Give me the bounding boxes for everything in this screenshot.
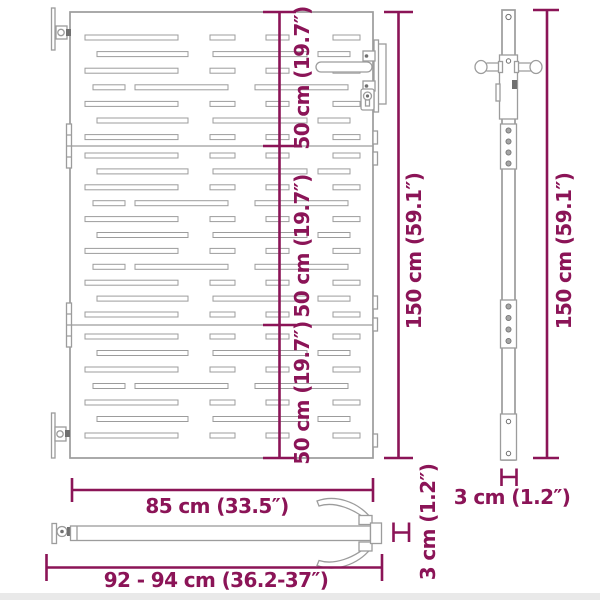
dim-label-post-height: 150 cm (59.1″) bbox=[552, 173, 576, 330]
gate-slat bbox=[210, 433, 235, 438]
gate-slat bbox=[97, 52, 188, 57]
gate-slat bbox=[333, 248, 360, 253]
gate-slat bbox=[333, 312, 360, 317]
dim-line-bar-thickness bbox=[394, 523, 410, 543]
gate-slat bbox=[85, 248, 178, 253]
gate-slat bbox=[333, 35, 360, 40]
gate-slat bbox=[210, 367, 235, 372]
gate-slat bbox=[135, 384, 228, 389]
gate-front-view bbox=[52, 8, 387, 458]
dim-label-section-3: 50 cm (19.7″) bbox=[290, 321, 314, 464]
dim-label-post-thickness: 3 cm (1.2″) bbox=[454, 485, 571, 509]
gate-slat bbox=[210, 101, 235, 106]
gate-slat bbox=[333, 280, 360, 285]
gate-slat bbox=[318, 233, 350, 238]
gate-slat bbox=[210, 185, 235, 190]
hinge-knuckle-1 bbox=[67, 124, 72, 168]
dim-line-post-thickness bbox=[502, 469, 517, 487]
gate-slat bbox=[210, 334, 235, 339]
gate-slat bbox=[266, 334, 289, 339]
hinge-top-icon bbox=[56, 26, 71, 39]
gate-slat bbox=[318, 417, 350, 422]
gate-slat bbox=[135, 264, 228, 269]
gate-slat bbox=[318, 118, 350, 123]
gate-slat bbox=[318, 351, 350, 356]
dim-label-section-2: 50 cm (19.7″) bbox=[290, 174, 314, 317]
gate-slat bbox=[210, 35, 235, 40]
gate-slat bbox=[333, 153, 360, 158]
gate-slat bbox=[266, 312, 289, 317]
gate-slat bbox=[210, 248, 235, 253]
dim-label-overall-width: 92 - 94 cm (36.2-37″) bbox=[104, 568, 329, 592]
gate-slat bbox=[85, 280, 178, 285]
gate-slat bbox=[210, 68, 235, 73]
side-lock-and-handles bbox=[475, 55, 542, 119]
hinge-bottom-icon bbox=[55, 427, 70, 441]
gate-slat bbox=[266, 400, 289, 405]
gate-slat bbox=[266, 35, 289, 40]
hinge-knuckle-2 bbox=[67, 303, 72, 347]
gate-slat bbox=[85, 35, 178, 40]
gate-slat bbox=[318, 296, 350, 301]
side-hinge-plate-1 bbox=[501, 124, 517, 169]
gate-slat bbox=[266, 248, 289, 253]
gate-slat bbox=[85, 101, 178, 106]
gate-slat bbox=[85, 153, 178, 158]
side-hinge-plate-2 bbox=[501, 300, 517, 348]
wall-strip-top bbox=[52, 8, 56, 50]
gate-slat bbox=[93, 201, 125, 206]
gate-slat bbox=[85, 68, 178, 73]
gate-slat bbox=[97, 118, 188, 123]
gate-slat bbox=[210, 400, 235, 405]
gate-slat bbox=[318, 52, 350, 57]
gate-slat bbox=[85, 400, 178, 405]
gate-slat bbox=[210, 217, 235, 222]
gate-slat bbox=[266, 217, 289, 222]
gate-slat bbox=[213, 169, 307, 174]
dim-label-section-1: 50 cm (19.7″) bbox=[290, 6, 314, 149]
dim-label-bar-thickness: 3 cm (1.2″) bbox=[416, 464, 440, 581]
gate-slat bbox=[85, 185, 178, 190]
gate-slat bbox=[266, 153, 289, 158]
gate-slat bbox=[85, 367, 178, 372]
side-bottom-bracket bbox=[501, 414, 517, 460]
gate-slat bbox=[210, 135, 235, 140]
gate-slat bbox=[135, 201, 228, 206]
gate-slat bbox=[210, 312, 235, 317]
top-bar bbox=[71, 526, 371, 541]
gate-slat bbox=[135, 85, 228, 90]
gate-slat bbox=[97, 417, 188, 422]
gate-slat bbox=[266, 367, 289, 372]
latch-handle-bar bbox=[316, 62, 372, 72]
gate-slat bbox=[333, 101, 360, 106]
gate-slat bbox=[266, 135, 289, 140]
gate-slat bbox=[333, 433, 360, 438]
gate-slat bbox=[93, 85, 125, 90]
gate-slat bbox=[97, 169, 188, 174]
gate-slat bbox=[333, 185, 360, 190]
gate-slat bbox=[266, 101, 289, 106]
gate-slat bbox=[266, 433, 289, 438]
gate-slat bbox=[333, 334, 360, 339]
gate-slat bbox=[97, 233, 188, 238]
dim-label-gate-width: 85 cm (33.5″) bbox=[145, 494, 288, 518]
gate-slat bbox=[85, 217, 178, 222]
gate-slat bbox=[97, 296, 188, 301]
gate-slat bbox=[85, 135, 178, 140]
gate-slat bbox=[97, 351, 188, 356]
bottom-edge-strip bbox=[0, 593, 600, 600]
gate-slat bbox=[333, 367, 360, 372]
gate-slat bbox=[93, 264, 125, 269]
gate-slat bbox=[266, 185, 289, 190]
dim-label-gate-height: 150 cm (59.1″) bbox=[402, 173, 426, 330]
product-dimension-diagram: 50 cm (19.7″) 50 cm (19.7″) 50 cm (19.7″… bbox=[0, 0, 600, 600]
gate-slat bbox=[93, 384, 125, 389]
gate-slat bbox=[318, 169, 350, 174]
gate-slat bbox=[210, 153, 235, 158]
gate-slat bbox=[333, 217, 360, 222]
gate-slat bbox=[85, 433, 178, 438]
gate-slat bbox=[210, 280, 235, 285]
gate-slat bbox=[266, 68, 289, 73]
gate-side-view bbox=[475, 10, 542, 460]
gate-slat bbox=[333, 135, 360, 140]
gate-slat bbox=[85, 334, 178, 339]
gate-slat bbox=[85, 312, 178, 317]
gate-slat bbox=[333, 400, 360, 405]
top-wall-plate bbox=[52, 524, 57, 544]
gate-slat bbox=[266, 280, 289, 285]
